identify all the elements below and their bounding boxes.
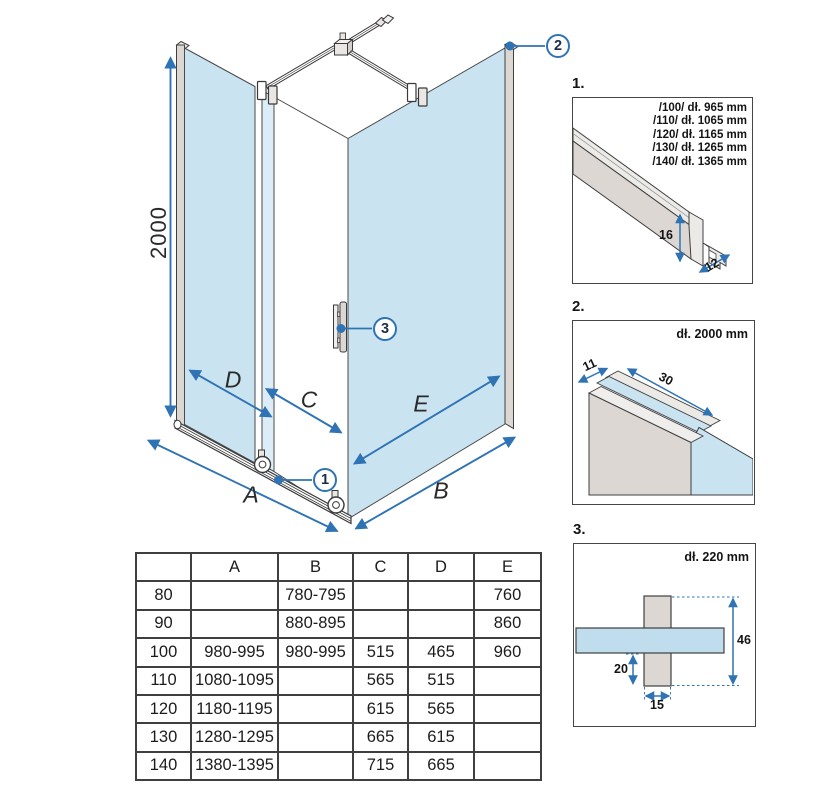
table-cell: 615	[408, 723, 474, 751]
table-cell: 760	[474, 581, 541, 609]
shower-enclosure-spec-sheet: 2000 D C E A B 1 2 3 1.	[0, 0, 831, 800]
detail-3-box: dł. 220 mm 46 20 15	[573, 543, 756, 727]
table-cell	[278, 723, 353, 751]
detail-3-dim-46: 46	[737, 633, 751, 647]
detail-2-length: dł. 2000 mm	[628, 327, 748, 341]
table-cell: 140	[136, 752, 191, 780]
table-cell	[408, 610, 474, 638]
length-option: /130/ dł. 1265 mm	[617, 142, 747, 155]
wall-anchor-bracket	[376, 15, 394, 27]
callout-3-dot	[337, 324, 346, 333]
table-cell	[353, 581, 408, 609]
length-option: /110/ dł. 1065 mm	[617, 115, 747, 128]
table-row: 110 1080-1095 565 515	[136, 667, 541, 695]
detail-3-dim-20: 20	[614, 662, 628, 676]
size-table: A B C D E 80 780-795 760 90 880-895	[135, 552, 542, 781]
dim-label-A: A	[243, 482, 258, 509]
callout-3-badge: 3	[373, 317, 397, 341]
right-wall-profile	[505, 42, 518, 429]
table-cell	[408, 581, 474, 609]
wall-profile-section	[589, 371, 753, 495]
table-cell: 565	[408, 695, 474, 723]
table-cell: 960	[474, 638, 541, 666]
length-option: /120/ dł. 1165 mm	[617, 129, 747, 142]
callout-2-badge: 2	[546, 34, 570, 58]
height-dimension-label: 2000	[146, 206, 172, 259]
detail-1-box: /100/ dł. 965 mm /110/ dł. 1065 mm /120/…	[572, 97, 753, 284]
detail-1-label: 1.	[572, 75, 585, 92]
callout-1-dot	[274, 476, 283, 485]
table-cell: 980-995	[278, 638, 353, 666]
table-cell: 1180-1195	[191, 695, 278, 723]
table-cell	[278, 667, 353, 695]
table-row: 140 1380-1395 715 665	[136, 752, 541, 780]
profile-length-list: /100/ dł. 965 mm /110/ dł. 1065 mm /120/…	[617, 102, 747, 169]
table-cell: 110	[136, 667, 191, 695]
table-cell: 665	[353, 723, 408, 751]
table-cell	[191, 581, 278, 609]
table-row: 130 1280-1295 665 615	[136, 723, 541, 751]
detail-2-label: 2.	[572, 298, 585, 315]
table-cell: 90	[136, 610, 191, 638]
header-cell: A	[191, 553, 278, 581]
table-cell: 980-995	[191, 638, 278, 666]
header-cell	[136, 553, 191, 581]
dim-label-D: D	[225, 367, 242, 394]
table-row: 100 980-995 980-995 515 465 960	[136, 638, 541, 666]
table-cell	[474, 695, 541, 723]
dim-label-E: E	[413, 391, 428, 418]
header-cell: B	[278, 553, 353, 581]
header-cell: E	[474, 553, 541, 581]
table-cell	[191, 610, 278, 638]
main-isometric-drawing	[0, 0, 575, 545]
detail-1-dim-16: 16	[659, 228, 673, 242]
table-cell	[474, 723, 541, 751]
table-cell	[278, 695, 353, 723]
support-bar-right	[348, 49, 416, 92]
table-cell: 515	[408, 667, 474, 695]
detail-2-box: dł. 2000 mm 11 30	[572, 320, 755, 505]
table-row: 80 780-795 760	[136, 581, 541, 609]
table-cell: 515	[353, 638, 408, 666]
header-cell: C	[353, 553, 408, 581]
detail-3-dim-15: 15	[650, 698, 664, 712]
right-glass-panel	[348, 48, 505, 519]
callout-1-badge: 1	[313, 468, 337, 492]
detail-3-drawing	[574, 544, 754, 725]
table-cell: 880-895	[278, 610, 353, 638]
length-option: /140/ dł. 1365 mm	[617, 156, 747, 169]
support-bar-left	[266, 45, 338, 89]
table-cell	[353, 610, 408, 638]
table-cell	[474, 752, 541, 780]
table-cell: 465	[408, 638, 474, 666]
table-cell: 130	[136, 723, 191, 751]
detail-2-drawing	[573, 321, 753, 503]
dim-label-C: C	[301, 387, 318, 414]
table-cell	[474, 667, 541, 695]
table-header-row: A B C D E	[136, 553, 541, 581]
table-cell: 565	[353, 667, 408, 695]
detail-3-label: 3.	[573, 521, 586, 538]
table-cell: 80	[136, 581, 191, 609]
table-cell	[278, 752, 353, 780]
table-cell: 1080-1095	[191, 667, 278, 695]
table-cell: 715	[353, 752, 408, 780]
detail-3-length: dł. 220 mm	[629, 550, 749, 564]
table-cell: 1280-1295	[191, 723, 278, 751]
handle-cross-section	[576, 596, 724, 686]
table-row: 120 1180-1195 615 565	[136, 695, 541, 723]
table-cell: 615	[353, 695, 408, 723]
length-option: /100/ dł. 965 mm	[617, 102, 747, 115]
header-cell: D	[408, 553, 474, 581]
dim-label-B: B	[433, 478, 448, 505]
table-cell: 780-795	[278, 581, 353, 609]
table-cell: 665	[408, 752, 474, 780]
callout-2-dot	[506, 42, 515, 51]
table-cell: 860	[474, 610, 541, 638]
table-row: 90 880-895 860	[136, 610, 541, 638]
bar-connector	[335, 33, 353, 55]
table-cell: 120	[136, 695, 191, 723]
table-cell: 1380-1395	[191, 752, 278, 780]
table-cell: 100	[136, 638, 191, 666]
